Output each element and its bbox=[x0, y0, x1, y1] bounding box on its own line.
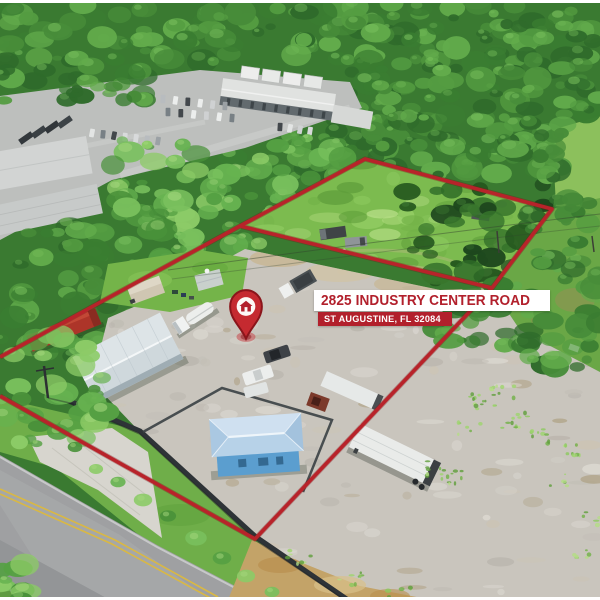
address-line2-box: ST AUGUSTINE, FL 32084 bbox=[318, 312, 452, 326]
address-line1-box: 2825 INDUSTRY CENTER ROAD bbox=[314, 290, 550, 311]
address-banner: 2825 INDUSTRY CENTER ROAD ST AUGUSTINE, … bbox=[314, 290, 550, 326]
address-line1-text: 2825 INDUSTRY CENTER ROAD bbox=[321, 293, 530, 309]
blue-house bbox=[207, 413, 307, 481]
map-pin-house-icon bbox=[225, 287, 267, 345]
photo-frame-top bbox=[0, 0, 600, 3]
aerial-listing-photo: 2825 INDUSTRY CENTER ROAD ST AUGUSTINE, … bbox=[0, 0, 600, 600]
address-line2-text: ST AUGUSTINE, FL 32084 bbox=[324, 314, 441, 325]
umbrella bbox=[205, 269, 210, 274]
house-door bbox=[245, 307, 248, 311]
